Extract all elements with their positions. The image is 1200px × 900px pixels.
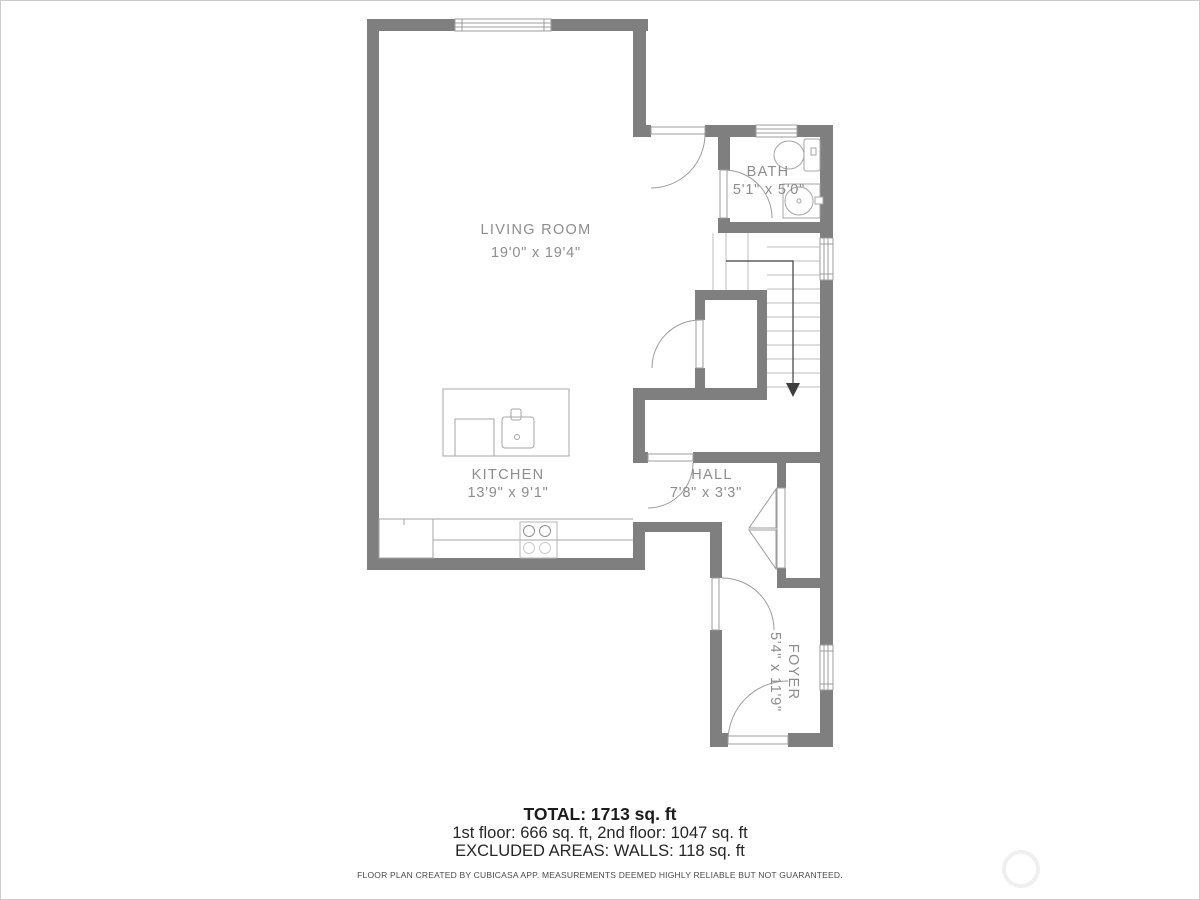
wall-segment	[788, 733, 833, 747]
floor-plan-drawing: LIVING ROOM 19'0" x 19'4" BATH 5'1" x 5'…	[0, 0, 1200, 780]
living-room-dims: 19'0" x 19'4"	[491, 245, 581, 261]
wall-segment	[757, 290, 767, 390]
bath-label: BATH	[747, 164, 790, 180]
hall-dims: 7'8" x 3'3"	[670, 485, 742, 501]
window-bath	[756, 125, 797, 137]
wall-segment	[695, 290, 705, 320]
kitchen-counter	[379, 519, 633, 558]
wall-segment	[695, 290, 767, 300]
wall-segment	[633, 125, 651, 137]
window-living-room	[455, 19, 551, 31]
bath-dims: 5'1" x 5'0"	[733, 182, 805, 198]
total-area-text: TOTAL: 1713 sq. ft	[0, 804, 1200, 825]
window-stairs	[820, 238, 833, 280]
door-coat-closet-bifold	[749, 488, 785, 569]
door-foyer-side	[710, 578, 774, 630]
wall-segment	[367, 558, 645, 570]
kitchen-dims: 13'9" x 9'1"	[467, 485, 548, 501]
foyer-dims: 5'4" x 11'9"	[767, 632, 783, 712]
wall-segment	[718, 222, 833, 233]
floor-plan-page: LIVING ROOM 19'0" x 19'4" BATH 5'1" x 5'…	[0, 0, 1200, 900]
wall-segment	[693, 452, 833, 463]
living-room-label: LIVING ROOM	[481, 222, 592, 238]
wall-segment	[710, 522, 722, 578]
wall-segment	[633, 388, 767, 400]
foyer-label: FOYER	[785, 644, 801, 700]
foyer-label-group: FOYER 5'4" x 11'9"	[767, 632, 801, 712]
wall-segment	[633, 388, 645, 463]
wall-segment	[633, 522, 645, 570]
wall-segment	[777, 578, 823, 588]
fridge-icon	[379, 519, 433, 558]
wall-segment	[710, 630, 722, 747]
wall-segment	[718, 137, 730, 170]
wall-segment	[777, 463, 786, 488]
kitchen-island	[443, 389, 569, 456]
wall-segment	[710, 733, 728, 747]
hall-label: HALL	[691, 467, 732, 483]
door-understair-closet	[652, 320, 705, 368]
watermark-circle	[1002, 850, 1040, 888]
wall-segment	[633, 452, 648, 463]
wall-segment	[633, 19, 646, 137]
floor-areas-text: 1st floor: 666 sq. ft, 2nd floor: 1047 s…	[0, 824, 1200, 843]
wall-segment	[367, 19, 379, 570]
wall-segment	[705, 125, 756, 137]
kitchen-label: KITCHEN	[472, 467, 545, 483]
wall-segment	[633, 522, 722, 532]
wall-segment	[367, 19, 457, 31]
door-living-to-hall	[651, 125, 705, 188]
window-foyer	[820, 645, 833, 690]
